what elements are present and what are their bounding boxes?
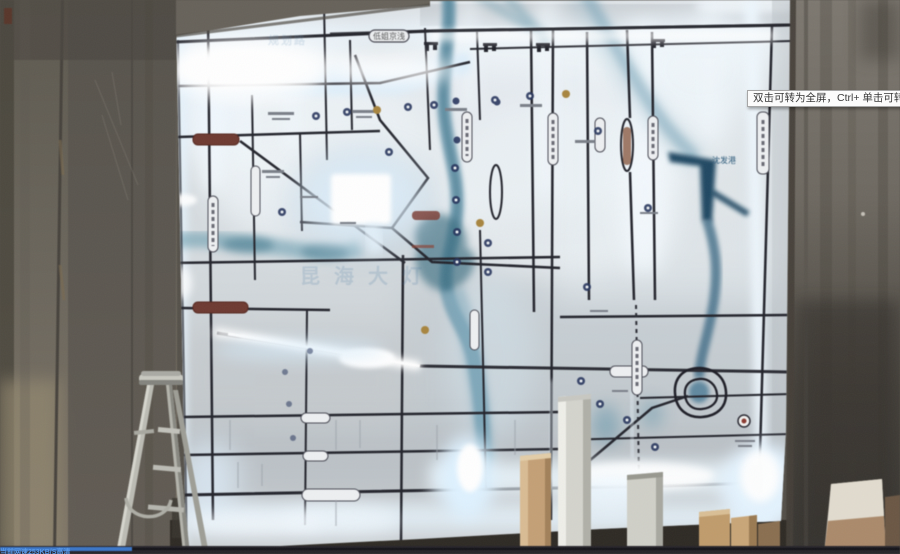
svg-text:低姐京浅: 低姐京浅 — [373, 31, 405, 41]
svg-text:规划路: 规划路 — [268, 33, 307, 47]
svg-text:沈发港: 沈发港 — [712, 155, 736, 165]
svg-text:昆海大灯: 昆海大灯 — [300, 264, 436, 288]
